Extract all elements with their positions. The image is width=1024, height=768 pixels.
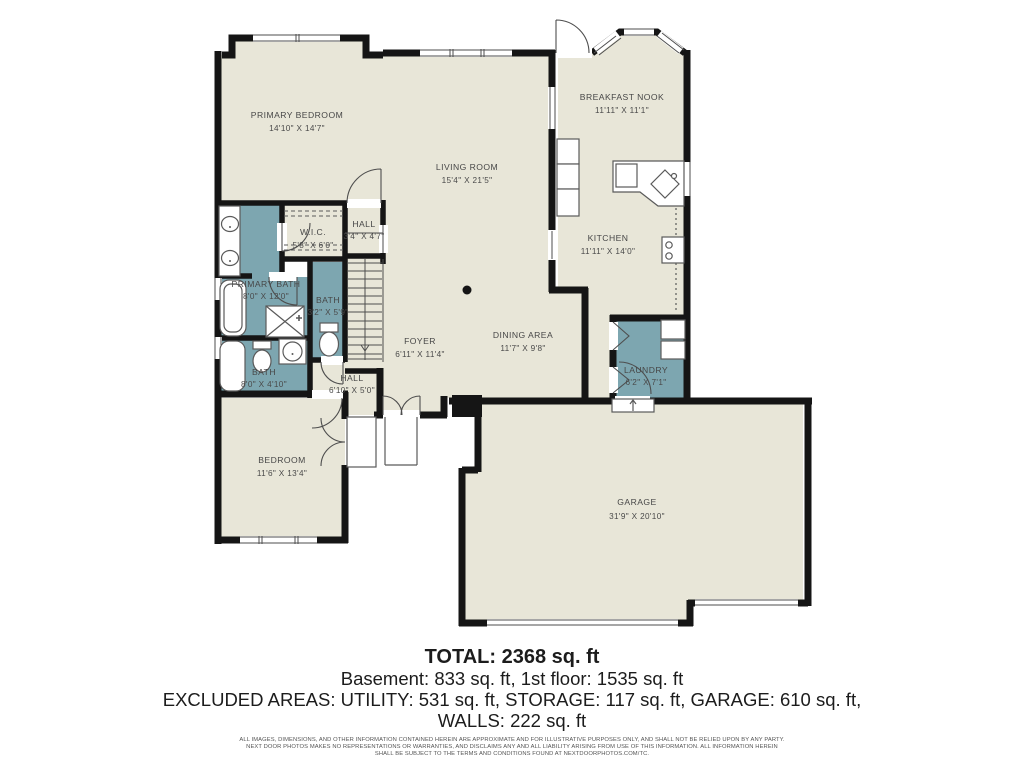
- room-dims-bath-small: 3'2" X 5'9": [307, 308, 348, 317]
- walls-area-text: WALLS: 222 sq. ft: [0, 710, 1024, 731]
- room-label-living-room: LIVING ROOM: [436, 162, 498, 172]
- room-label-bath-lower: BATH: [252, 367, 276, 377]
- floor-areas: [218, 32, 803, 620]
- disclaimer-line-3: SHALL BE SUBJECT TO THE TERMS AND CONDIT…: [0, 751, 1024, 758]
- post-dot: [463, 286, 472, 295]
- toilet-icon: [320, 323, 339, 356]
- total-area-text: TOTAL: 2368 sq. ft: [0, 646, 1024, 668]
- room-dims-laundry: 6'2" X 7'1": [625, 378, 666, 387]
- room-label-wic: W.I.C.: [300, 227, 326, 237]
- room-label-primary-bedroom: PRIMARY BEDROOM: [251, 110, 343, 120]
- refrigerator-icon: [557, 139, 579, 216]
- sink-icon: [279, 339, 306, 364]
- basement-first-floor-text: Basement: 833 sq. ft, 1st floor: 1535 sq…: [0, 668, 1024, 689]
- room-label-primary-bath: PRIMARY BATH: [232, 279, 301, 289]
- disclaimer-text: ALL IMAGES, DIMENSIONS, AND OTHER INFORM…: [0, 737, 1024, 758]
- room-dims-wic: 5'8" X 6'0": [292, 241, 333, 250]
- floor-plan-page: PRIMARY BEDROOM 14'10" X 14'7" LIVING RO…: [0, 0, 1024, 768]
- disclaimer-line-1: ALL IMAGES, DIMENSIONS, AND OTHER INFORM…: [0, 737, 1024, 744]
- hall-upper-floor: [345, 203, 383, 259]
- room-dims-primary-bedroom: 14'10" X 14'7": [269, 124, 325, 133]
- room-dims-garage: 31'9" X 20'10": [609, 512, 665, 521]
- sink-icon: [222, 217, 239, 232]
- room-label-bedroom: BEDROOM: [258, 455, 306, 465]
- room-dims-breakfast-nook: 11'11" X 11'1": [595, 106, 649, 115]
- disclaimer-line-2: NEXT DOOR PHOTOS MAKES NO REPRESENTATION…: [0, 744, 1024, 751]
- washer-dryer-icon: [661, 320, 685, 359]
- window-bedroom: [240, 536, 317, 544]
- room-label-kitchen: KITCHEN: [588, 233, 629, 243]
- room-label-laundry: LAUNDRY: [624, 365, 668, 375]
- room-dims-primary-bath: 8'0" X 12'0": [243, 292, 289, 301]
- room-dims-kitchen: 11'11" X 14'0": [581, 247, 636, 256]
- stairs-floor: [345, 258, 383, 364]
- stove-icon: [662, 237, 684, 263]
- window-primary-bedroom-bay: [253, 34, 340, 42]
- cooktop-icon: [616, 164, 637, 187]
- window-living-room: [420, 49, 512, 57]
- room-label-bath-small: BATH: [316, 295, 340, 305]
- room-dims-foyer: 6'11" X 11'4": [395, 350, 445, 359]
- room-label-hall-upper: HALL: [352, 219, 375, 229]
- area-summary: TOTAL: 2368 sq. ft Basement: 833 sq. ft,…: [0, 646, 1024, 758]
- room-dims-bath-lower: 8'0" X 4'10": [241, 380, 287, 389]
- room-label-hall-lower: HALL: [340, 373, 363, 383]
- garage-entry-step: [612, 399, 654, 412]
- excluded-areas-text: EXCLUDED AREAS: UTILITY: 531 sq. ft, STO…: [0, 689, 1024, 710]
- garage-door-large: [487, 619, 678, 627]
- room-dims-dining-area: 11'7" X 9'8": [500, 344, 545, 353]
- room-label-dining-area: DINING AREA: [493, 330, 553, 340]
- shower-icon: [266, 306, 304, 337]
- garage-door-small: [695, 599, 798, 607]
- room-label-garage: GARAGE: [617, 497, 656, 507]
- bathtub-inner: [224, 284, 242, 332]
- room-label-foyer: FOYER: [404, 336, 436, 346]
- room-label-breakfast-nook: BREAKFAST NOOK: [580, 92, 664, 102]
- garage-corner-wall-block: [452, 395, 482, 417]
- porch-outline: [385, 417, 417, 465]
- window-kitchen-west: [548, 87, 556, 129]
- room-dims-hall-upper: 3'4" X 4'7": [343, 232, 384, 241]
- room-dims-living-room: 15'4" X 21'5": [442, 176, 493, 185]
- sink-icon: [222, 251, 239, 266]
- room-dims-bedroom: 11'6" X 13'4": [257, 469, 307, 478]
- bedroom-closet: [347, 417, 376, 467]
- room-dims-hall-lower: 6'10" X 5'0": [329, 386, 375, 395]
